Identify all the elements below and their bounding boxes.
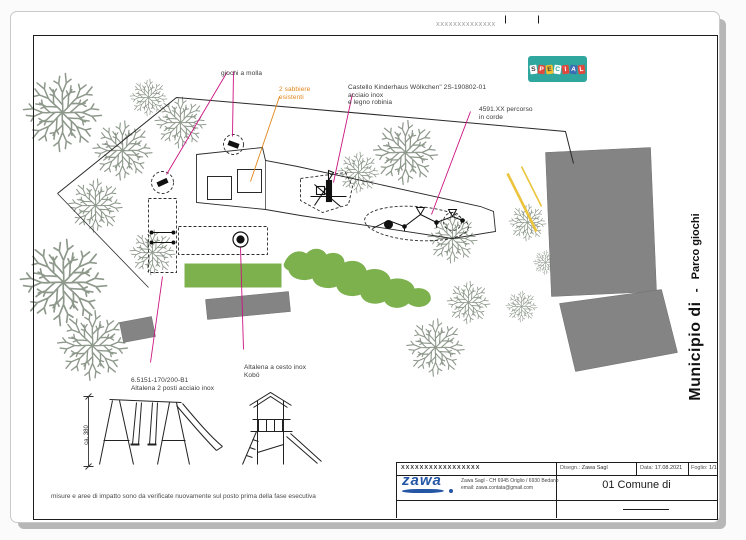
municipality-title: Municipio di [687, 301, 705, 400]
tb-foglio: Foglio: 1/1 [691, 465, 717, 471]
revision-strip-placeholder: XXXXXXXXXXXXXX [436, 22, 496, 28]
company-email: email: zawa.contata@gmail.com [461, 485, 559, 492]
execution-note: misure e aree di impatto sono da verific… [51, 493, 316, 500]
label-altalena-due-line2: Altalena 2 posti acciaio inox [131, 385, 214, 393]
tb-disegn-value: Zawa Sagl [582, 465, 608, 471]
park-subtitle: Parco giochi [690, 213, 702, 279]
tb-disegn: Disegn.: Zawa Sagl [560, 465, 608, 471]
label-percorso: 4591.XX percorso in corde [479, 106, 533, 121]
tb-project-placeholder: XXXXXXXXXXXXXXXXX [401, 465, 480, 471]
label-altalena-cesto-line2: Kobö [244, 372, 306, 380]
label-castello-line1: Castello Kinderhaus Wölkchen" 2S-190802-… [348, 84, 486, 92]
dimension-label: ca. 380 [84, 425, 90, 445]
label-altalena-due: 6.5151-170/200-B1 Altalena 2 posti accia… [131, 377, 214, 392]
logo-letter-tile: A [570, 64, 578, 74]
logo-letter-tile: E [546, 64, 554, 74]
special-logo: S P E C I A L [528, 56, 587, 82]
company-address-line: Zawa Sagl - CH 6945 Origlio / 6930 Bedan… [461, 478, 559, 485]
label-altalena-cesto: Altalena a cesto inox Kobö [244, 364, 306, 379]
logo-letter-tile: L [578, 64, 586, 74]
logo-letter-tile: C [553, 64, 561, 74]
company-address: Zawa Sagl - CH 6945 Origlio / 6930 Bedan… [461, 478, 559, 491]
zawa-logo-dot-icon [449, 489, 453, 493]
tb-foglio-value: 1/1 [709, 465, 717, 471]
label-sabbiere-line1: 2 sabbiere [279, 86, 310, 94]
label-percorso-line1: 4591.XX percorso [479, 106, 533, 114]
drawing-title: 01 Comune di [556, 479, 717, 491]
frame-ticks [505, 15, 538, 23]
logo-letter-tile: S [529, 64, 537, 74]
logo-letter-tile: I [561, 64, 569, 74]
label-giochi-a-molla: giochi a molla [221, 70, 262, 78]
drawing-page: XXXXXXXXXXXXXX S P E C I A L giochi a mo… [10, 11, 720, 523]
label-castello-line3: e legno robinia [348, 99, 486, 107]
tb-foglio-label: Foglio: [691, 465, 708, 471]
drawing-frame [33, 35, 718, 520]
zawa-logo-swoosh-icon [401, 489, 445, 493]
label-altalena-cesto-line1: Altalena a cesto inox [244, 364, 306, 372]
tb-data-label: Data: [640, 465, 653, 471]
label-percorso-line2: in corde [479, 114, 533, 122]
tb-data-value: 17.08.2021 [655, 465, 683, 471]
tb-data: Data: 17.08.2021 [640, 465, 682, 471]
title-dash: - [689, 288, 703, 292]
tb-disegn-label: Disegn.: [560, 465, 580, 471]
logo-letter-tile: P [537, 64, 545, 74]
sheet-vertical-title: Municipio di - Parco giochi [683, 157, 709, 457]
label-sabbiere: 2 sabbiere esistenti [279, 86, 310, 101]
zawa-logo-text: zawa [402, 474, 456, 488]
label-sabbiere-line2: esistenti [279, 94, 310, 102]
label-castello-line2: acciaio inox [348, 92, 486, 100]
zawa-logo: zawa [402, 474, 456, 493]
label-castello: Castello Kinderhaus Wölkchen" 2S-190802-… [348, 84, 486, 107]
plan-sheet-screen: XXXXXXXXXXXXXX S P E C I A L giochi a mo… [0, 0, 746, 540]
label-altalena-due-line1: 6.5151-170/200-B1 [131, 377, 214, 385]
